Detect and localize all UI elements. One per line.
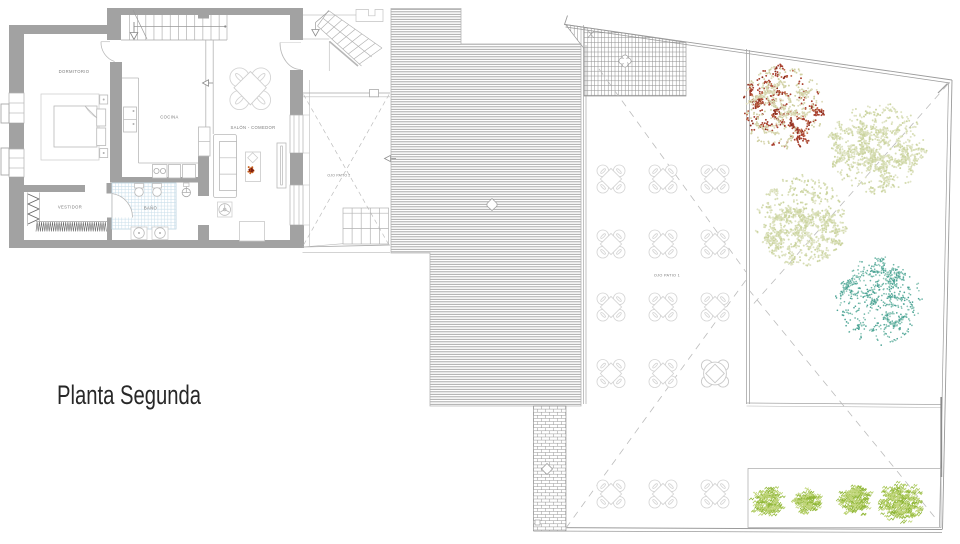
svg-text:OJO PATIO 1: OJO PATIO 1 — [654, 274, 680, 278]
svg-text:VESTIDOR: VESTIDOR — [58, 205, 82, 210]
svg-text:DORMITORIO: DORMITORIO — [59, 69, 90, 74]
svg-text:COCINA: COCINA — [160, 115, 178, 120]
svg-text:OJO PATIO 2: OJO PATIO 2 — [327, 174, 350, 178]
svg-text:Planta Segunda: Planta Segunda — [57, 380, 202, 410]
svg-text:SALÓN - COMEDOR: SALÓN - COMEDOR — [230, 125, 275, 130]
svg-text:BAÑO: BAÑO — [144, 206, 158, 211]
